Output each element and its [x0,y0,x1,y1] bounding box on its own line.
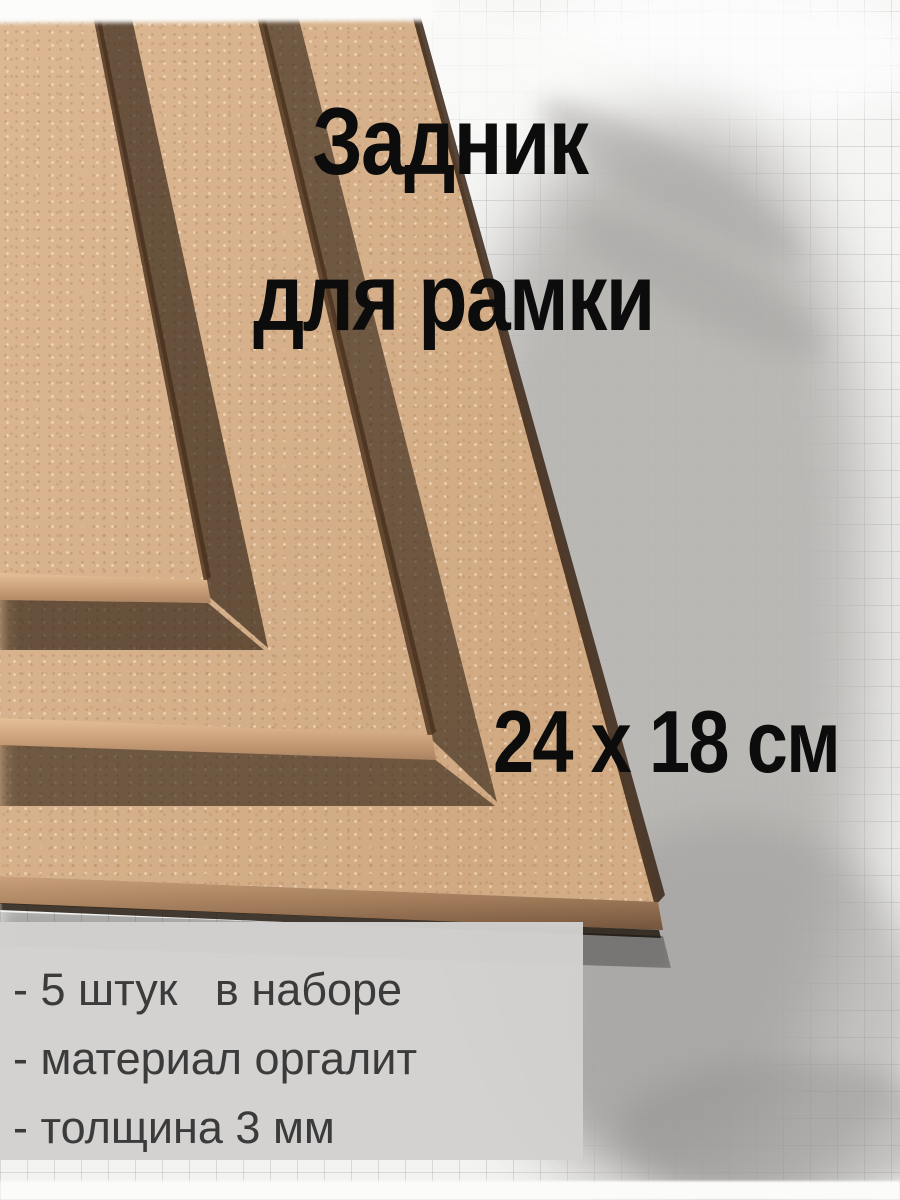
product-image: Задник для рамки 24 x 18 см - 5 штук в н… [0,0,900,1200]
feature-item-quantity: - 5 штук в наборе [0,955,583,1024]
product-title-line1: Задник [240,96,660,188]
product-title-line1-text: Задник [312,96,587,188]
product-title-line2: для рамки [215,252,675,344]
features-list: - 5 штук в наборе - материал оргалит - т… [0,922,583,1162]
features-panel: - 5 штук в наборе - материал оргалит - т… [0,922,583,1160]
product-size-label-text: 24 x 18 см [493,694,839,790]
bottom-white-paper-strip [0,1181,900,1200]
product-size-label: 24 x 18 см [460,694,870,790]
feature-item-thickness: - толщина 3 мм [0,1093,583,1162]
product-title-line2-text: для рамки [253,252,653,344]
feature-item-material: - материал оргалит [0,1024,583,1093]
top-white-paper-strip [0,0,434,23]
